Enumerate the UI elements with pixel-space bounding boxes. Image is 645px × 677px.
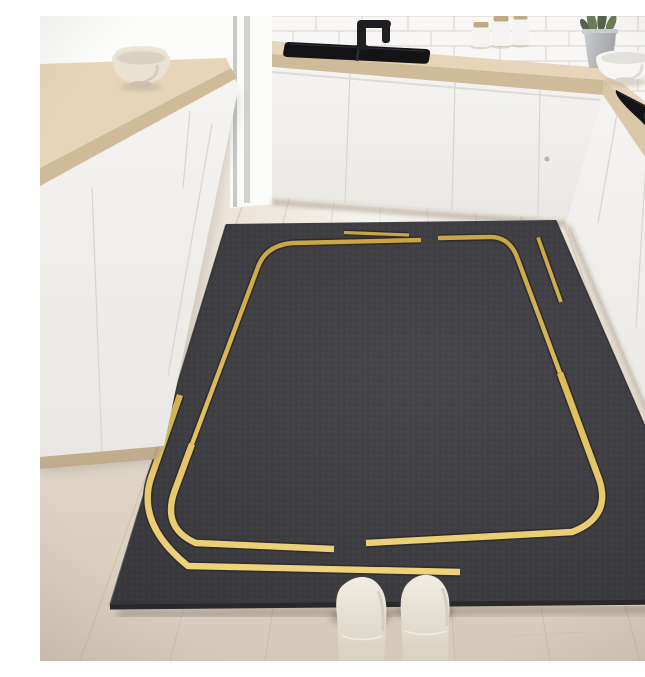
kitchen-mat-product-photo bbox=[40, 16, 645, 661]
scene-canvas bbox=[40, 16, 645, 661]
vignette bbox=[40, 16, 645, 661]
